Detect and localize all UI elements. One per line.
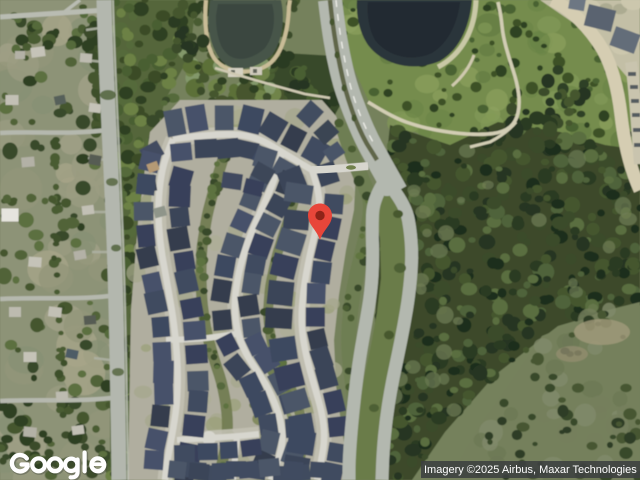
svg-text:Imagery ©2025 Airbus, Maxar Te: Imagery ©2025 Airbus, Maxar Technologies	[424, 464, 637, 476]
